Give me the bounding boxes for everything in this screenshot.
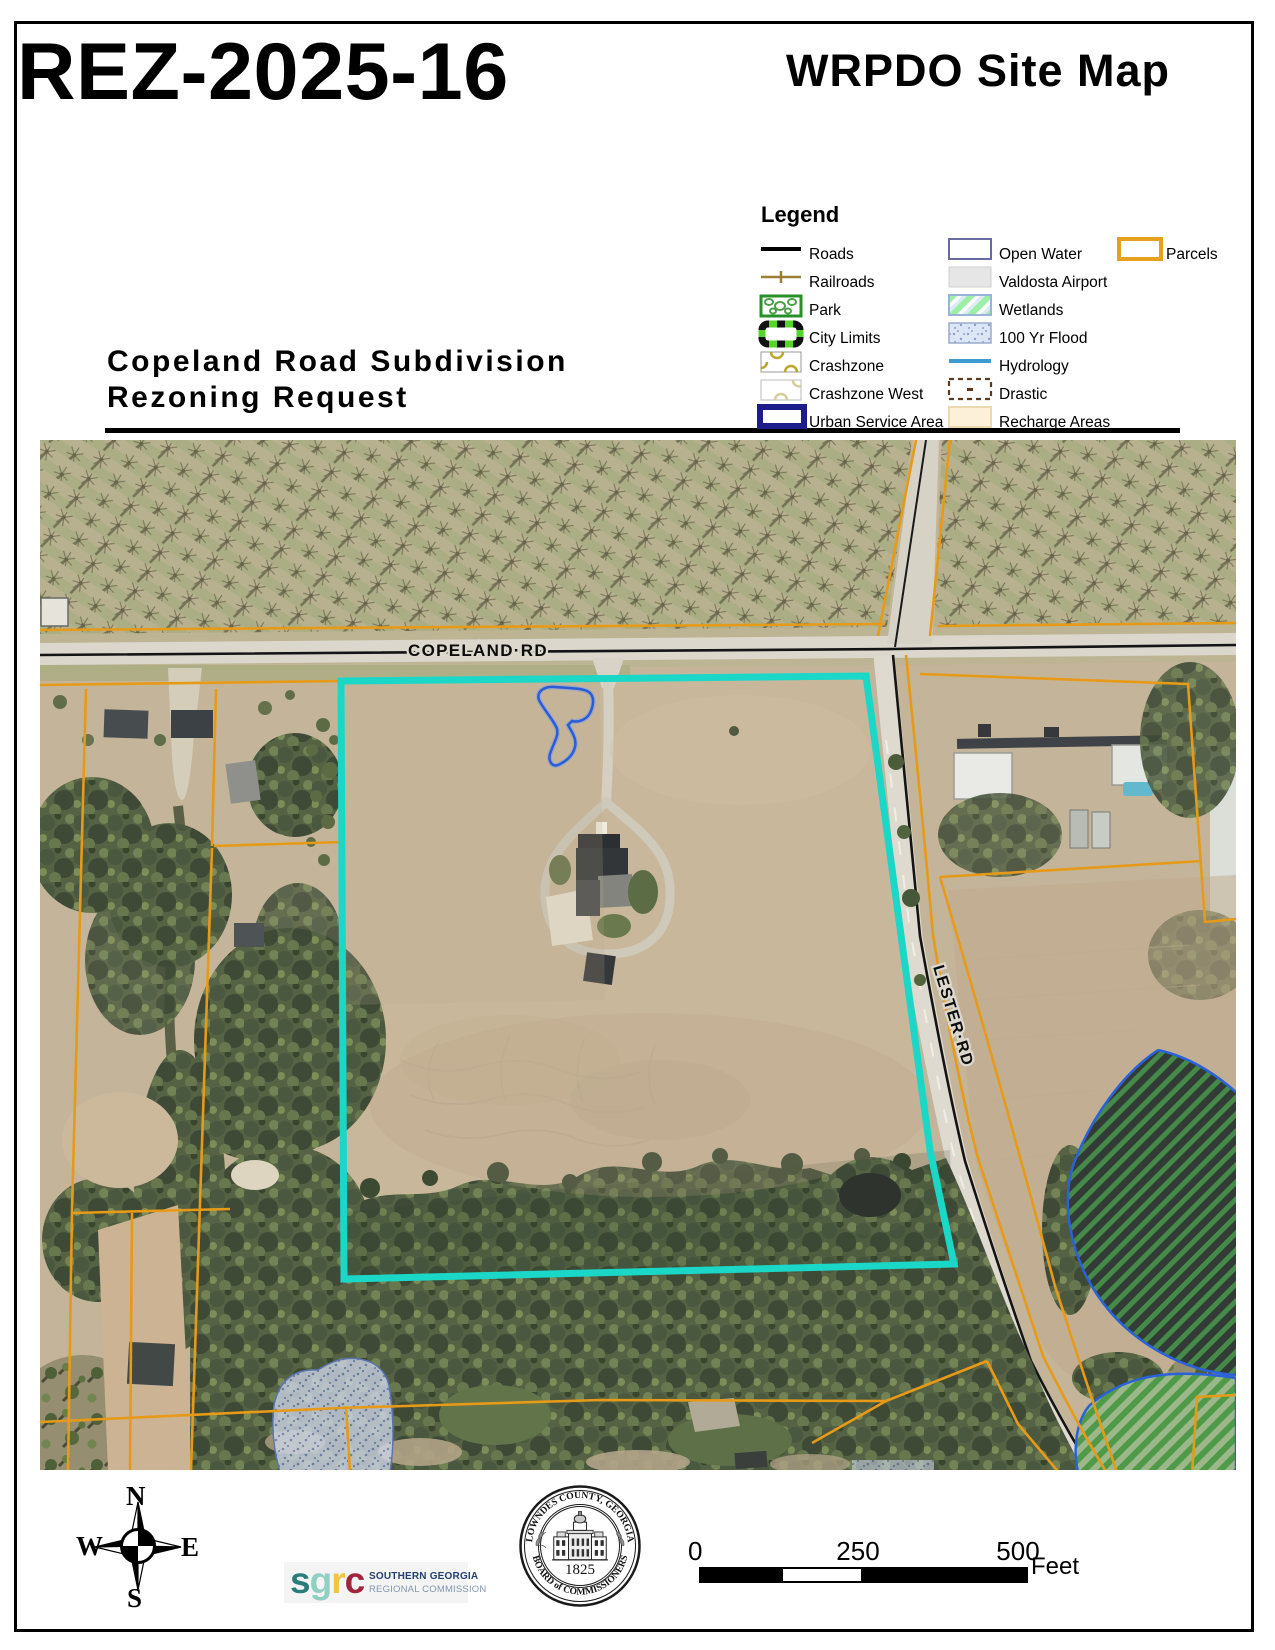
svg-text:COPELAND·RD: COPELAND·RD [408, 641, 548, 660]
svg-text:1825: 1825 [565, 1562, 595, 1578]
